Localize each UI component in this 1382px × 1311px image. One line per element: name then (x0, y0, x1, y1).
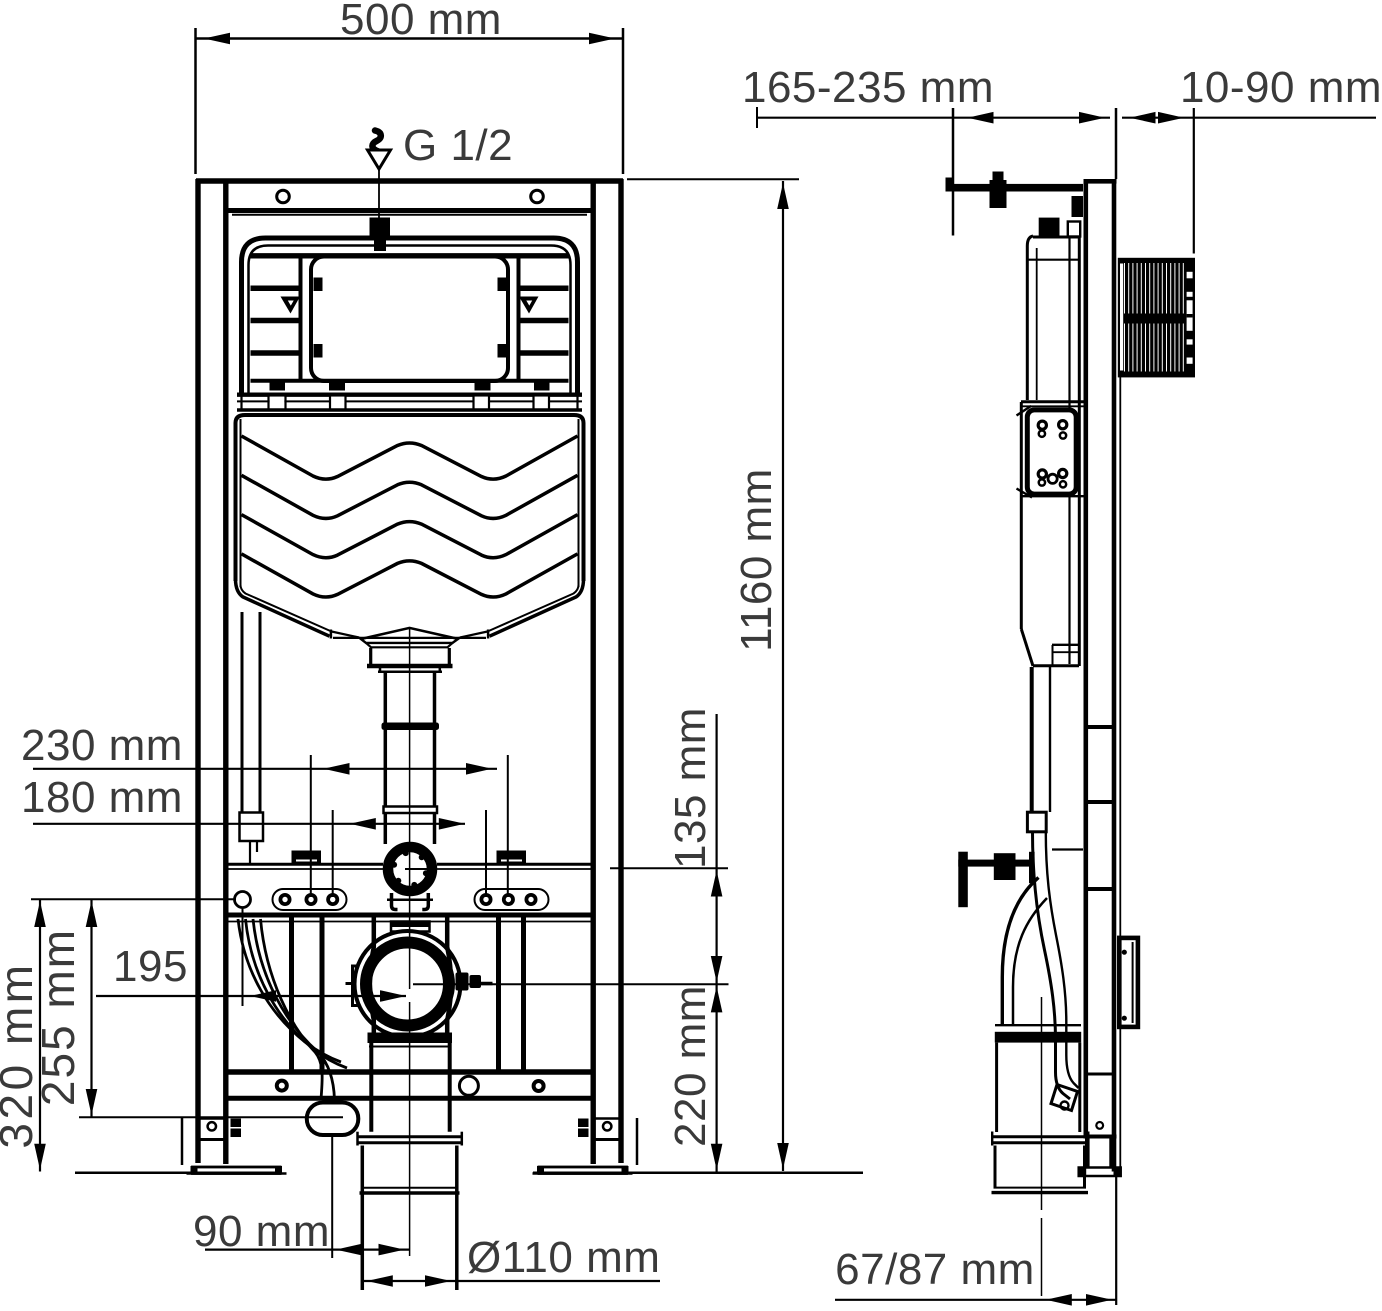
svg-text:1160 mm: 1160 mm (732, 468, 781, 652)
svg-text:195: 195 (113, 942, 188, 991)
svg-text:180 mm: 180 mm (21, 773, 183, 822)
svg-text:G 1/2: G 1/2 (403, 121, 513, 170)
svg-text:Ø110 mm: Ø110 mm (467, 1233, 660, 1282)
svg-text:165-235 mm: 165-235 mm (742, 63, 994, 112)
svg-text:10-90 mm: 10-90 mm (1180, 63, 1382, 112)
svg-text:135 mm: 135 mm (666, 707, 715, 869)
svg-text:67/87 mm: 67/87 mm (835, 1245, 1035, 1294)
svg-text:500 mm: 500 mm (340, 0, 502, 44)
svg-text:230 mm: 230 mm (21, 721, 183, 770)
svg-text:255 mm: 255 mm (32, 928, 84, 1106)
svg-text:220 mm: 220 mm (666, 985, 715, 1147)
